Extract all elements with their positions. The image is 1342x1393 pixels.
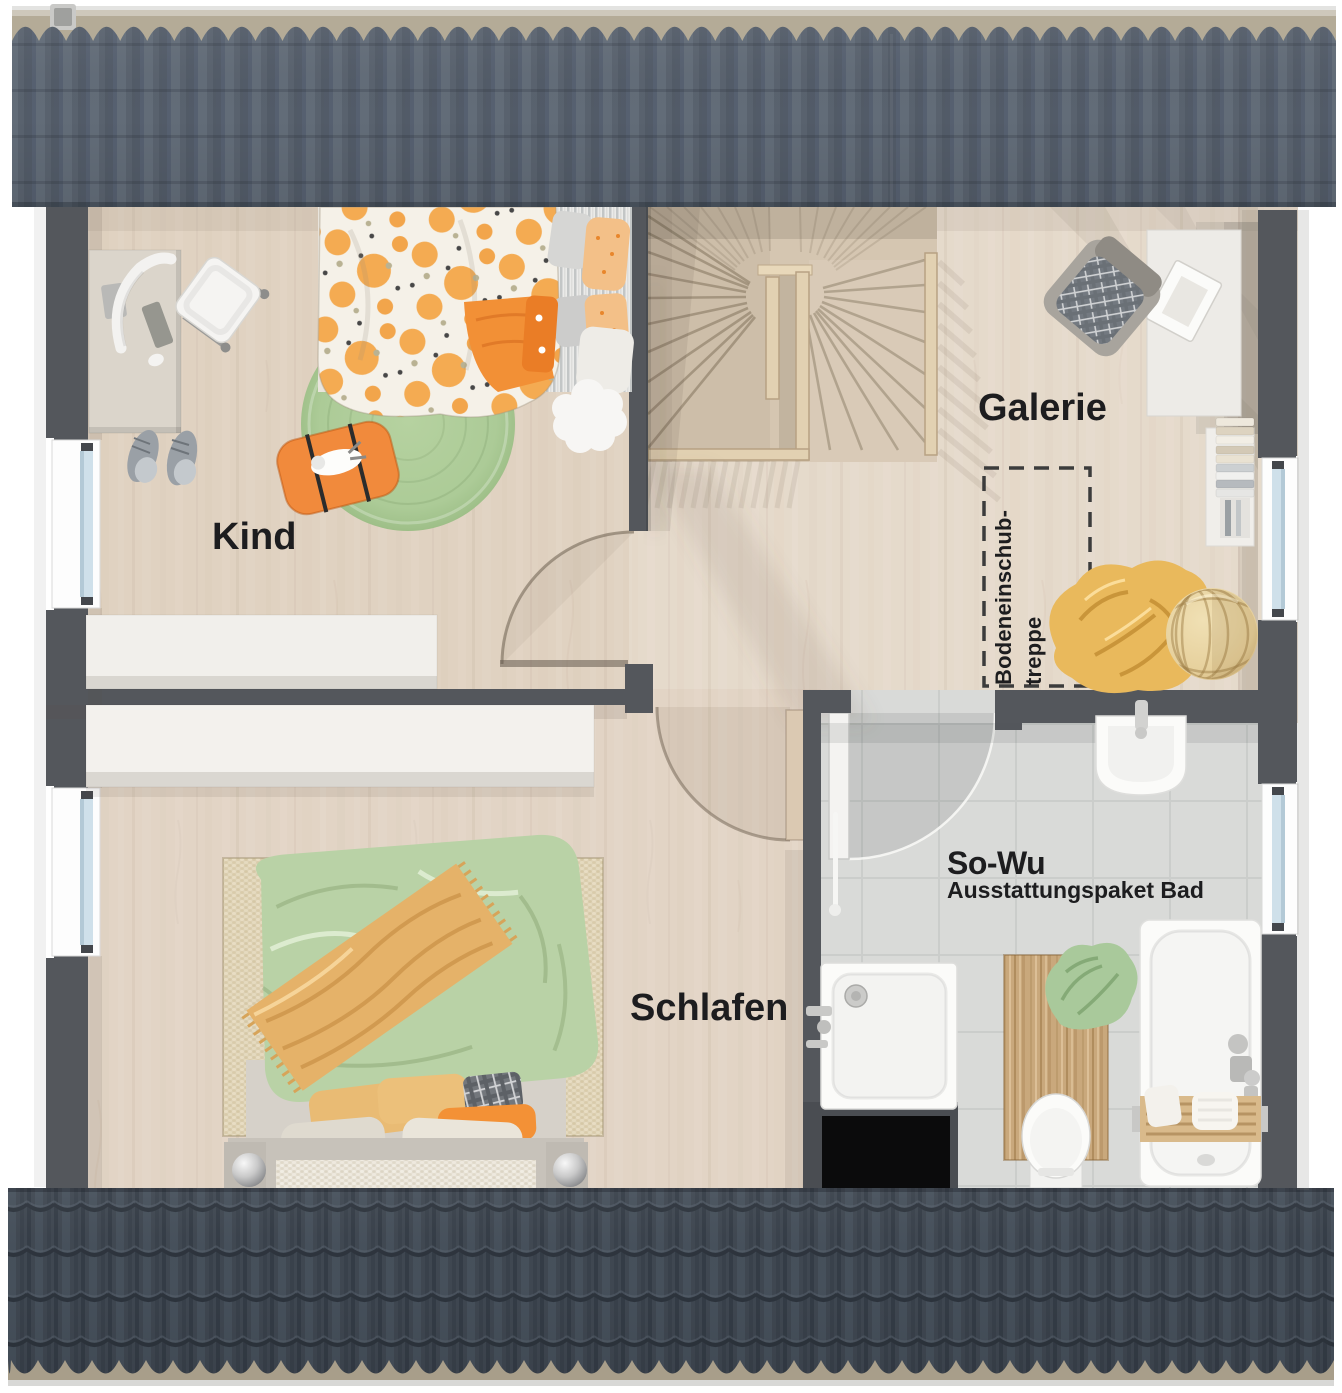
svg-text:treppe: treppe [1021,617,1046,685]
svg-text:So-Wu: So-Wu [947,845,1045,881]
svg-text:Kind: Kind [212,516,296,558]
svg-text:Bodeneinschub-: Bodeneinschub- [991,510,1016,685]
svg-text:Ausstattungspaket Bad: Ausstattungspaket Bad [947,877,1204,903]
svg-text:Galerie: Galerie [978,387,1107,429]
svg-text:Schlafen: Schlafen [630,987,788,1029]
